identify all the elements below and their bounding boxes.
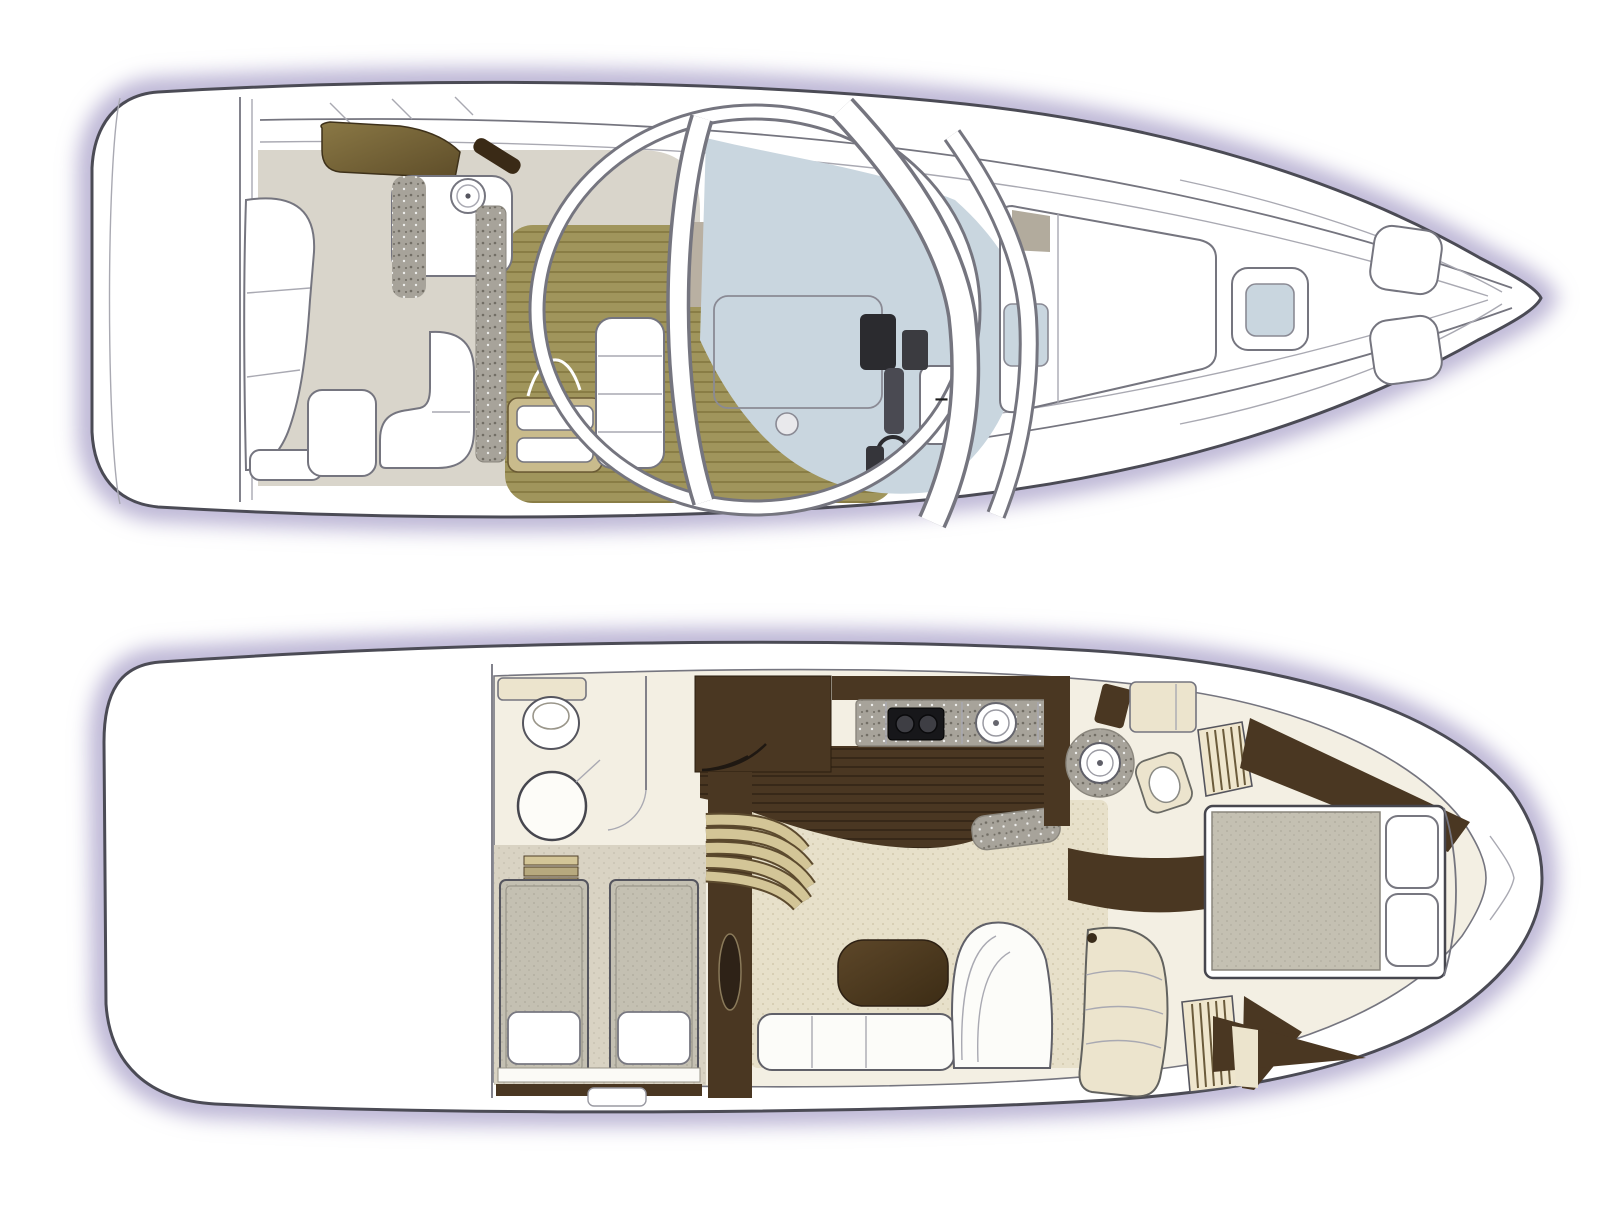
pillow [1386, 894, 1438, 966]
foredeck-hatch [1232, 268, 1308, 350]
pillow [618, 1012, 690, 1064]
pillow [508, 1012, 580, 1064]
galley-upper-cabinet [832, 676, 1068, 700]
lounge-chair [1080, 928, 1168, 1097]
aft-head-toilet [523, 697, 579, 749]
bulkhead-door-inset [719, 934, 741, 1010]
galley-cabinet-block [695, 676, 831, 772]
master-mattress [1212, 812, 1380, 970]
yacht-deck-plans: – [0, 0, 1622, 1232]
twin-berth-port [500, 880, 588, 1076]
berth-footboard [498, 1068, 700, 1082]
granite-pillar [476, 206, 506, 462]
mid-head-sink [1066, 729, 1134, 797]
main-deck-plan: – [92, 82, 1541, 522]
vanity-desk [1130, 682, 1196, 732]
twin-berth-starboard [610, 880, 698, 1076]
master-berth [1205, 806, 1445, 978]
cup-holder [776, 413, 798, 435]
salon-table [838, 940, 948, 1006]
galley-sink [976, 703, 1016, 743]
walkway-step [588, 1088, 646, 1106]
master-bulkhead-bottom-cream [1232, 1026, 1258, 1088]
mid-head-wall [1044, 676, 1070, 826]
wet-bar-granite [392, 176, 426, 298]
lower-deck-plan [104, 642, 1542, 1112]
cooktop [888, 708, 944, 740]
cockpit-table [308, 390, 376, 476]
pillow [1386, 816, 1438, 888]
dash-mark: – [934, 381, 949, 416]
chair-knob [1087, 933, 1097, 943]
aft-head-shower [518, 772, 586, 840]
aft-head-counter [498, 678, 586, 700]
sofa-corner [952, 923, 1052, 1068]
